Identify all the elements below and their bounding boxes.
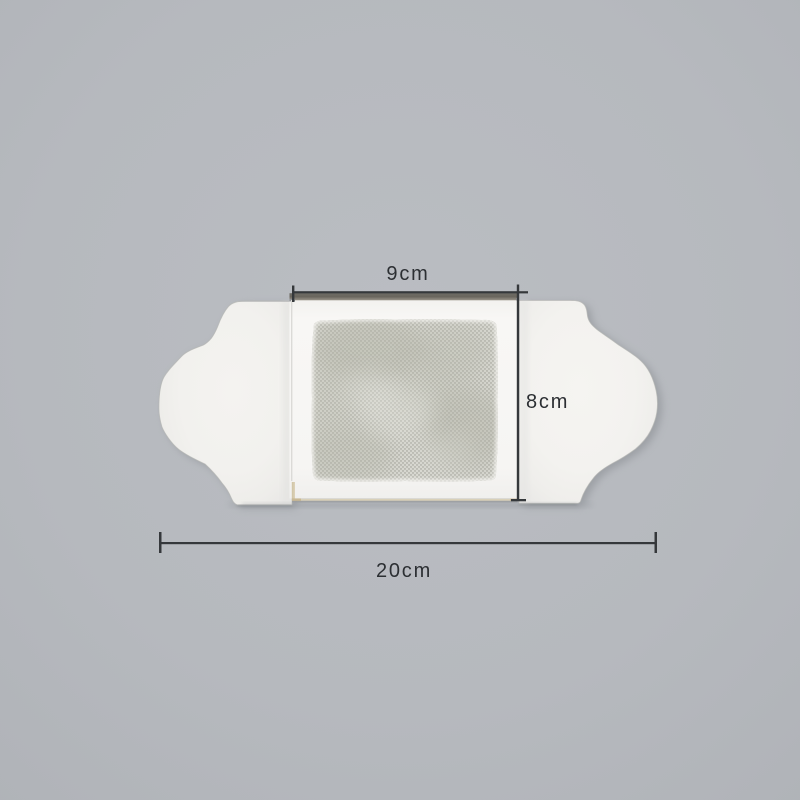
svg-text:9cm: 9cm [386, 263, 429, 285]
svg-text:8cm: 8cm [526, 391, 569, 413]
svg-text:20cm: 20cm [376, 560, 432, 582]
